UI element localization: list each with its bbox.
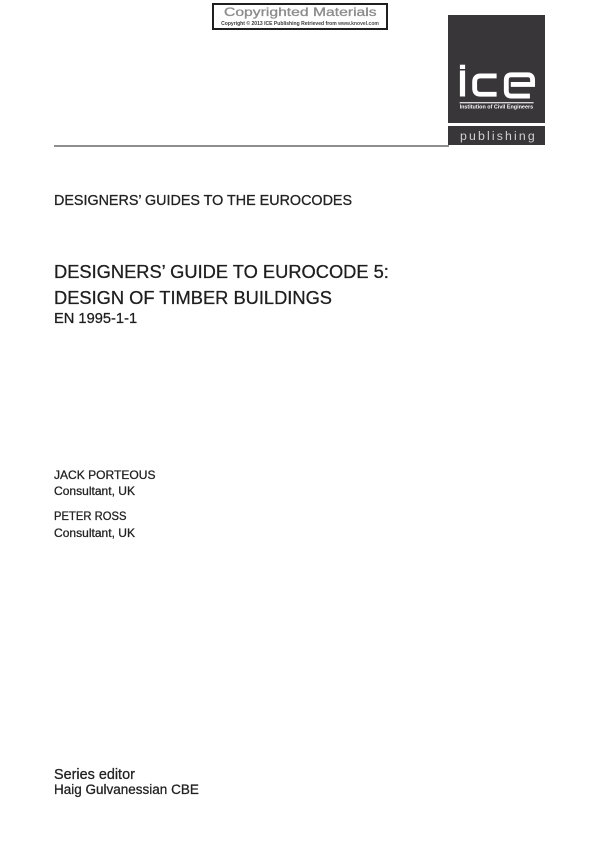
- svg-text:Institution of Civil Engineers: Institution of Civil Engineers: [460, 105, 533, 111]
